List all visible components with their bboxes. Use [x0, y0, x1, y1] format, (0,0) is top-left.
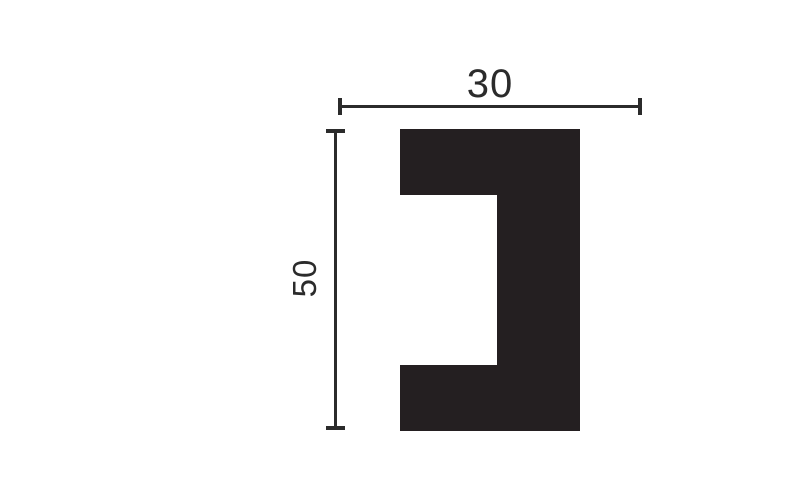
profile-shape-bottom-flange	[400, 365, 580, 431]
width-dimension-tick-right	[638, 98, 642, 115]
profile-cross-section-diagram: 30 50	[0, 0, 800, 500]
width-dimension-label: 30	[430, 64, 550, 104]
width-dimension-tick-left	[338, 98, 342, 115]
height-dimension-tick-top	[326, 129, 345, 133]
height-dimension-line	[334, 130, 337, 429]
height-dimension-tick-bottom	[326, 426, 345, 430]
height-dimension-label: 50	[288, 228, 322, 328]
width-dimension-line	[340, 105, 640, 108]
